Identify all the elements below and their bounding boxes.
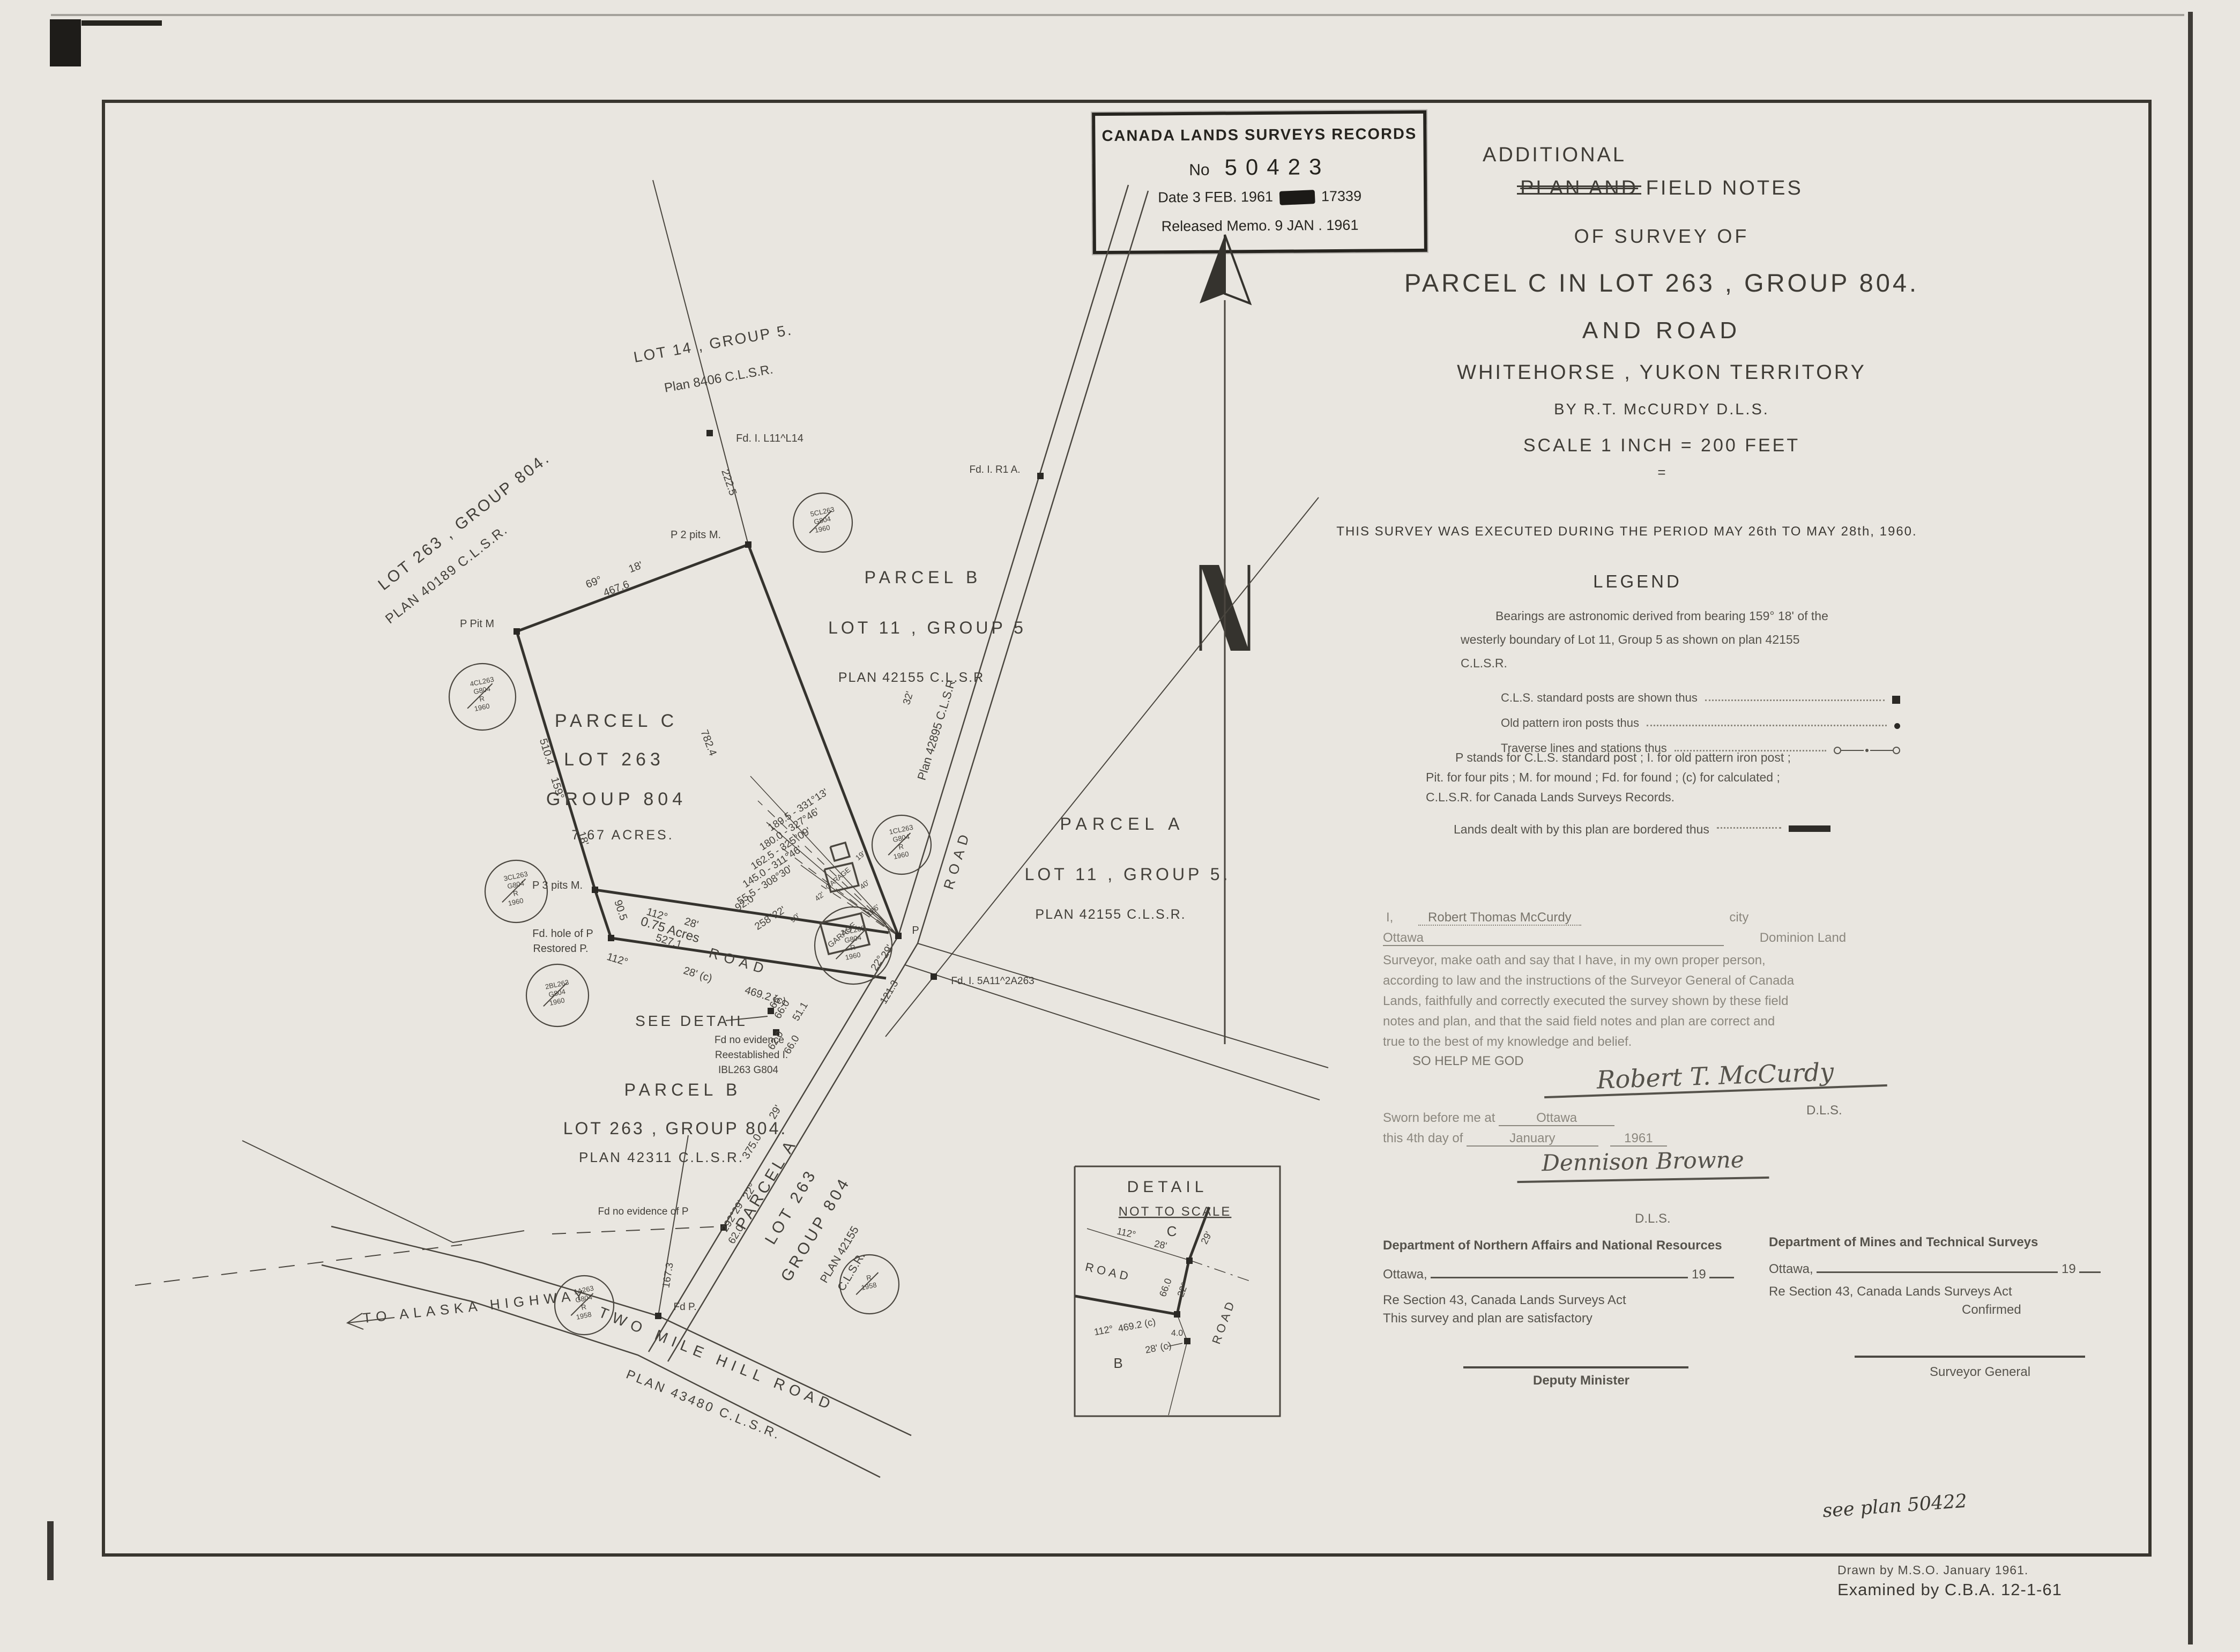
survey-post [1174,1311,1180,1318]
map-line [1177,1207,1209,1314]
map-label: 121.3 [878,978,901,1006]
map-label: 51.1 [791,1000,810,1023]
map-label: Plan 8406 C.L.S.R. [663,362,774,395]
map-label: P Pit M [460,618,494,630]
map-label: B [1113,1355,1122,1371]
map-label: 222.5 [719,468,739,497]
map-label: TWO MILE HILL ROAD [596,1304,837,1414]
survey-post [655,1313,661,1319]
map-label: 32' [901,690,916,706]
map-label: ROAD [1084,1260,1133,1284]
monument-label: R [512,889,519,898]
map-label: 782.4 [698,728,718,758]
map-line [830,843,850,861]
map-label: P 3 pits M. [532,880,583,891]
map-label: LOT 263 , GROUP 804. [375,449,553,594]
survey-post [514,628,520,635]
map-label: LOT 11 , GROUP 5 [828,618,1026,637]
map-label: Fd no evidence [715,1035,784,1046]
map-line [918,943,1328,1068]
survey-post [592,887,598,893]
map-line [242,1141,524,1242]
map-label: 167.3 [660,1262,675,1289]
map-label: 22° [1175,1281,1190,1298]
map-label: SEE DETAIL [635,1013,748,1029]
map-label: Plan 42895 C.L.S.R [914,678,958,782]
map-label: GROUP 804 [546,789,687,809]
map-label: DETAIL [1127,1178,1208,1196]
survey-post [1184,1338,1190,1344]
map-line [135,1245,462,1285]
monument-label: R [898,842,904,851]
map-label: LOT 11 , GROUP 5. [1025,865,1231,884]
map-label: 40' [858,878,871,891]
map-label: 467.6 [602,578,631,599]
map-label: Fd. I. 5A11^2A263 [951,976,1034,987]
monument-label: R [479,694,485,703]
monument-label: 1958 [860,1281,877,1292]
map-line [1075,1296,1177,1314]
map-label: ROAD [1209,1297,1238,1346]
map-label: PLAN 42155 C.L.S.R [838,670,984,685]
map-label: PLAN 42311 C.L.S.R. [579,1149,744,1165]
map-label: C [1167,1223,1177,1239]
map-label: GROUP 804 [778,1174,854,1285]
map-label: PARCEL B [865,568,982,587]
map-label: 90' [788,911,801,924]
map-label: 69° [584,574,604,591]
map-label: PARCEL C [555,711,678,731]
map-label: 4.0 [1171,1329,1183,1338]
survey-post [895,933,902,939]
monument-label: R [581,1303,587,1312]
map-label: LOT 263 [564,749,665,770]
survey-map: 1CL263G804R19602CL263G804R19603CL263G804… [0,0,2240,1652]
map-label: ROAD [707,944,771,978]
map-label: 28' [1154,1238,1168,1251]
survey-post [745,541,751,548]
map-label: Fd. I. R1 A. [969,464,1020,475]
map-label: Fd. hole of P [532,928,593,940]
map-label: P 2 pits M. [671,529,721,541]
map-label: 18' [627,559,644,575]
map-label: 90.5 [612,898,629,922]
map-label: 112° [1116,1226,1137,1240]
survey-post [1037,473,1044,479]
map-label: ROAD [940,828,973,891]
monument-label: R [850,943,856,952]
monument-label: 1960 [844,950,861,962]
map-label: Fd P. [674,1301,697,1313]
map-label: 42' [813,890,826,903]
map-label: 112° [1093,1323,1114,1337]
map-line [1191,1261,1250,1281]
map-label: PARCEL A [1060,814,1185,834]
map-label: 28' (c) [1144,1340,1172,1356]
map-label: 469.2 (c) [1117,1316,1157,1334]
survey-post [608,935,614,941]
map-label: 66.0 [1157,1277,1174,1298]
map-label: Restored P. [533,943,588,955]
map-label: 112° [605,951,629,969]
monument-label: 1958 [575,1310,592,1321]
map-line [517,545,748,631]
monument-label: 1960 [473,702,490,713]
survey-post [1186,1257,1193,1264]
monument-label: R [866,1273,872,1282]
map-label: NOT TO SCALE [1119,1204,1232,1219]
map-line [322,1265,880,1477]
monument-label: 1960 [892,850,909,861]
map-label: LOT 14 , GROUP 5. [632,321,794,366]
map-label: IBL263 G804 [718,1065,778,1076]
map-label: Reestablished I. [715,1050,788,1061]
map-label: Fd no evidence of P [598,1206,689,1217]
map-label: Fd. I. L11^L14 [736,433,803,444]
survey-post [706,430,713,436]
map-line [552,1226,724,1234]
map-label: PLAN 42155 C.L.S.R. [1035,907,1186,922]
map-line [595,890,611,938]
map-label: 510.4 [537,737,556,766]
map-label: P [912,925,919,936]
map-label: PARCEL B [624,1080,742,1099]
scanned-survey-plan-page: { "stamp": { "title": "CANADA LANDS SURV… [0,0,2240,1652]
survey-post [931,973,937,980]
map-label: 28' (c) [682,965,713,985]
monument-label: 1960 [507,896,524,907]
